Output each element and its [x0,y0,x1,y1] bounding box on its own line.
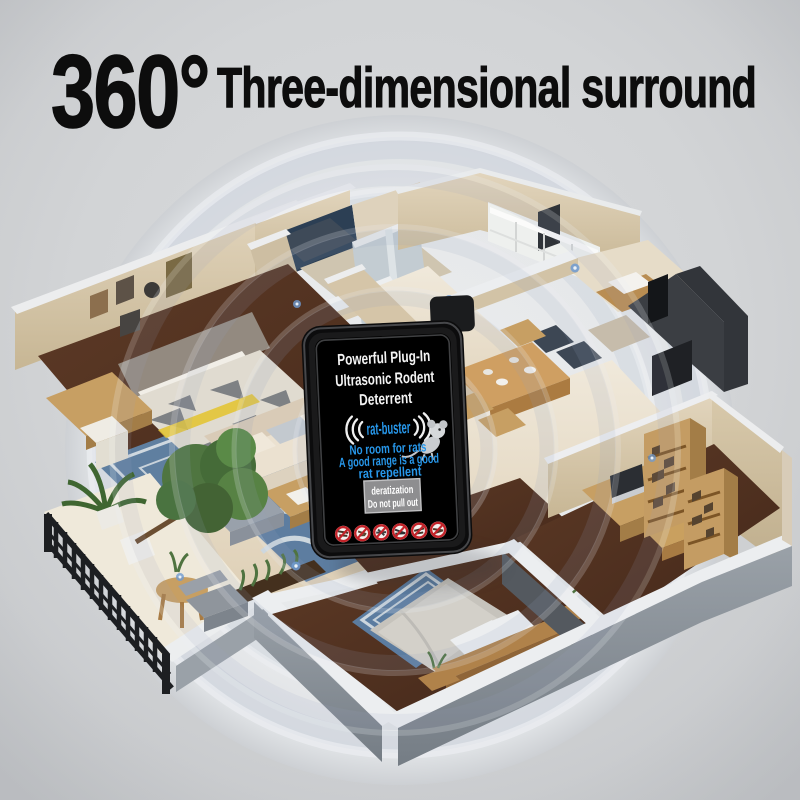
svg-text:deratization: deratization [371,484,414,498]
svg-text:Three-dimensional surround: Three-dimensional surround [217,55,756,119]
svg-text:Do not pull out: Do not pull out [368,497,419,511]
svg-text:rat-buster: rat-buster [366,418,411,439]
svg-text:Deterrent: Deterrent [359,390,413,409]
svg-text:360°: 360° [51,35,209,149]
